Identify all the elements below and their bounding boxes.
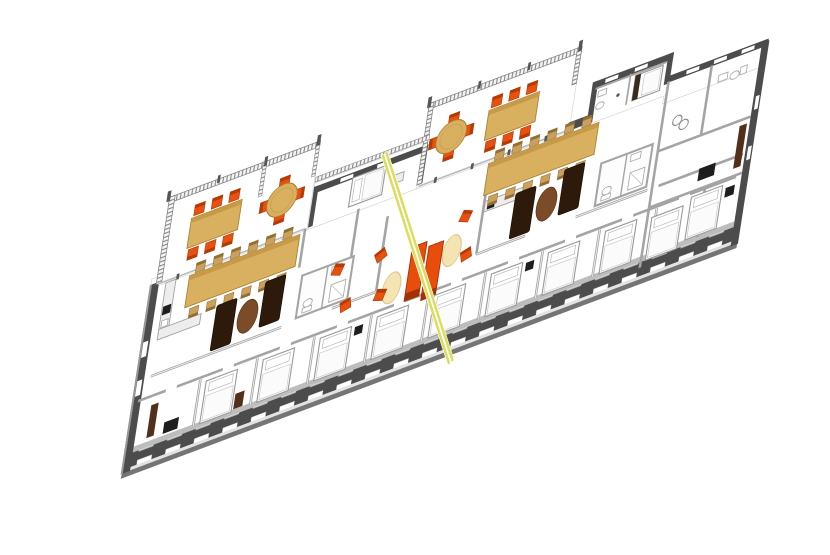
railing-post bbox=[578, 40, 583, 52]
floor-plan-stage bbox=[0, 0, 830, 555]
railing-post bbox=[316, 134, 321, 146]
building bbox=[119, 0, 782, 488]
floor-plan-render bbox=[0, 0, 830, 555]
